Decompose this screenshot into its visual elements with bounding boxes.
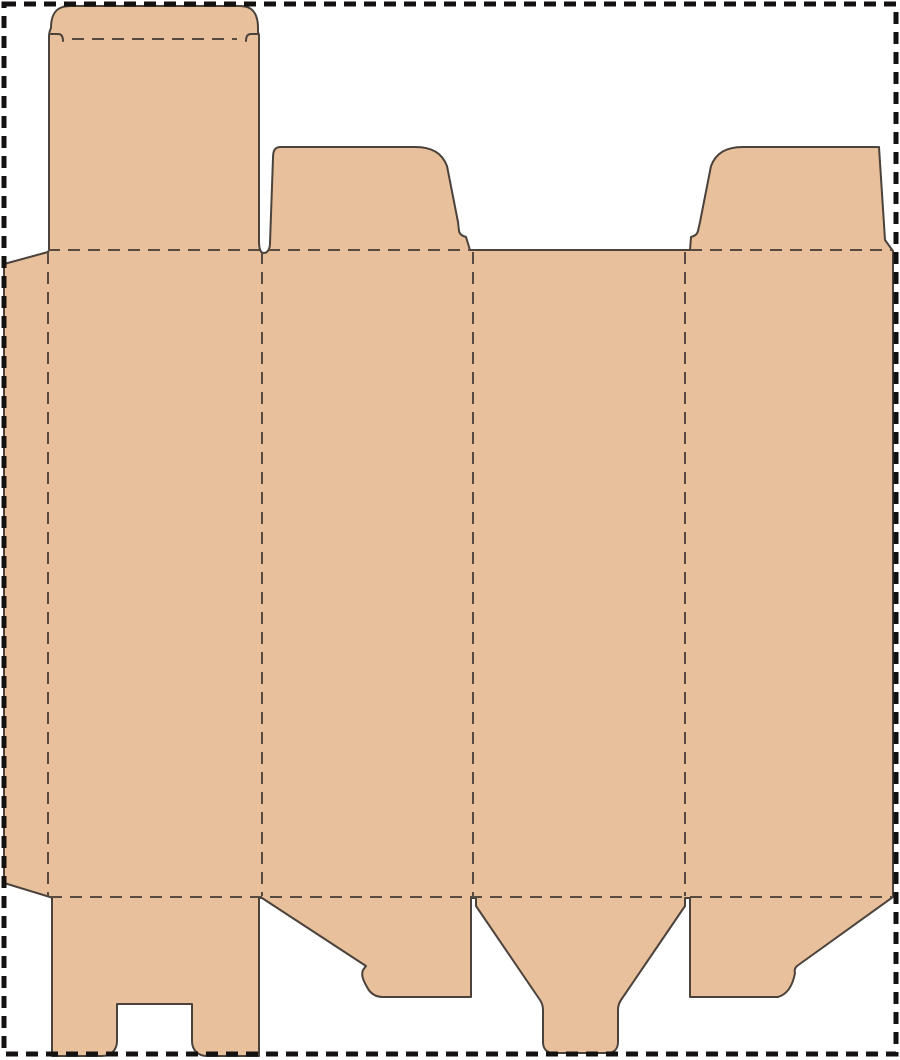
carton-blank-silhouette [4,6,893,1056]
dieline-canvas [0,0,900,1060]
